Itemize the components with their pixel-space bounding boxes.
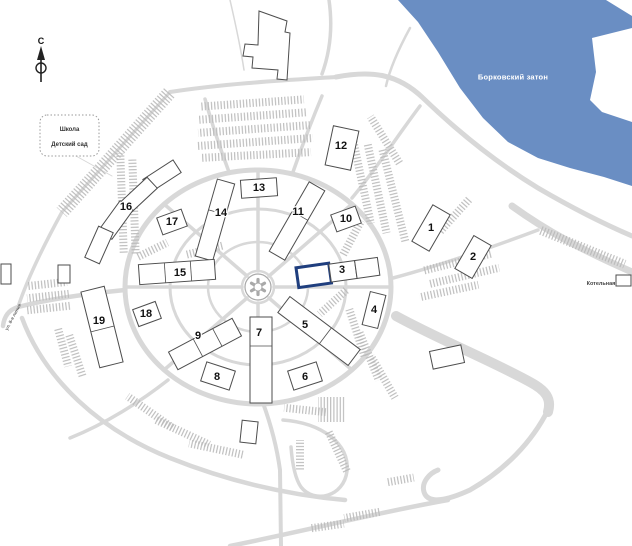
site-plan-map: Борковский затон bbox=[0, 0, 632, 546]
building-2-number: 2 bbox=[470, 251, 476, 263]
boiler-building bbox=[616, 275, 631, 286]
building-5[interactable]: 5 bbox=[278, 297, 360, 366]
road bbox=[230, 0, 244, 70]
parking-hatch-strip bbox=[310, 520, 345, 533]
riverside-building bbox=[429, 345, 464, 369]
building-9-number: 9 bbox=[195, 330, 201, 342]
small-building-left-a bbox=[58, 265, 70, 283]
parking-hatch-strip bbox=[188, 439, 243, 458]
building-18[interactable]: 18 bbox=[133, 301, 162, 326]
parking-hatch-strip bbox=[135, 239, 169, 261]
building-6[interactable]: 6 bbox=[288, 362, 323, 390]
building-14-number: 14 bbox=[215, 207, 228, 219]
building-3-highlight bbox=[296, 263, 331, 287]
building-3[interactable]: 3 bbox=[296, 256, 380, 287]
parking-hatch-strip bbox=[200, 95, 304, 110]
building-5-number: 5 bbox=[302, 319, 308, 331]
school-box-border bbox=[40, 115, 99, 156]
parking-hatch-strip bbox=[419, 281, 479, 301]
building-15[interactable]: 15 bbox=[138, 259, 215, 284]
building-19-number: 19 bbox=[93, 315, 105, 327]
road bbox=[170, 77, 336, 92]
building-10-number: 10 bbox=[340, 213, 352, 225]
building-11-number: 11 bbox=[292, 206, 304, 218]
parking-hatch-strip bbox=[368, 354, 399, 400]
road bbox=[396, 316, 549, 412]
building-18-number: 18 bbox=[140, 308, 152, 320]
north-label: С bbox=[38, 36, 45, 46]
building-17[interactable]: 17 bbox=[157, 209, 188, 235]
building-7-number: 7 bbox=[256, 327, 262, 339]
building-8[interactable]: 8 bbox=[201, 362, 236, 390]
parking-hatch-strip bbox=[344, 508, 381, 522]
central-roundabout bbox=[245, 274, 271, 300]
building-7[interactable]: 7 bbox=[250, 317, 272, 403]
large-building-outline bbox=[243, 11, 290, 80]
water-area: Борковский затон bbox=[398, 0, 632, 186]
small-building-bottom bbox=[240, 420, 258, 444]
building-12[interactable]: 12 bbox=[325, 126, 359, 171]
building-16-shape bbox=[85, 226, 113, 264]
building-19[interactable]: 19 bbox=[81, 286, 123, 367]
kindergarten-label: Детский сад bbox=[51, 141, 88, 148]
parking-hatch-strip bbox=[198, 121, 310, 137]
building-1-number: 1 bbox=[428, 222, 434, 234]
garage-block bbox=[318, 397, 345, 422]
school-kindergarten-box: Школа Детский сад bbox=[40, 115, 99, 156]
building-15-number: 15 bbox=[174, 267, 186, 279]
parking-hatch-strip bbox=[538, 226, 627, 269]
parking-hatch-strip bbox=[325, 430, 351, 474]
road bbox=[293, 96, 322, 172]
building-12-number: 12 bbox=[335, 140, 347, 152]
road bbox=[322, 0, 331, 74]
north-arrow: С bbox=[36, 36, 46, 82]
building-13[interactable]: 13 bbox=[240, 178, 277, 198]
building-4-number: 4 bbox=[371, 304, 378, 316]
roundabout-center bbox=[254, 283, 262, 291]
parking-hatch-strip bbox=[199, 108, 307, 124]
parking-hatch-strip bbox=[296, 440, 304, 470]
building-3-number: 3 bbox=[339, 264, 345, 276]
small-building-left-b bbox=[1, 264, 11, 284]
building-13-number: 13 bbox=[253, 182, 265, 194]
building-14-shape bbox=[195, 179, 234, 261]
parking-hatch-strip bbox=[201, 148, 311, 162]
boiler-label: Котельная bbox=[587, 281, 616, 287]
north-arrow-head-icon bbox=[37, 46, 45, 60]
building-17-number: 17 bbox=[166, 216, 178, 228]
building-8-number: 8 bbox=[214, 371, 220, 383]
building-19-shape bbox=[81, 286, 123, 367]
school-label: Школа bbox=[60, 127, 80, 133]
road bbox=[263, 403, 281, 546]
building-6-number: 6 bbox=[302, 371, 308, 383]
building-3-shape bbox=[355, 257, 380, 278]
building-14[interactable]: 14 bbox=[195, 179, 234, 261]
parking-hatch-strip bbox=[197, 134, 313, 150]
map-canvas: Борковский затон bbox=[0, 0, 632, 546]
building-5-shape bbox=[278, 297, 360, 366]
water-label: Борковский затон bbox=[478, 73, 548, 82]
road bbox=[423, 410, 548, 500]
parking-hatch-strip bbox=[386, 474, 415, 487]
building-16-number: 16 bbox=[120, 201, 132, 213]
